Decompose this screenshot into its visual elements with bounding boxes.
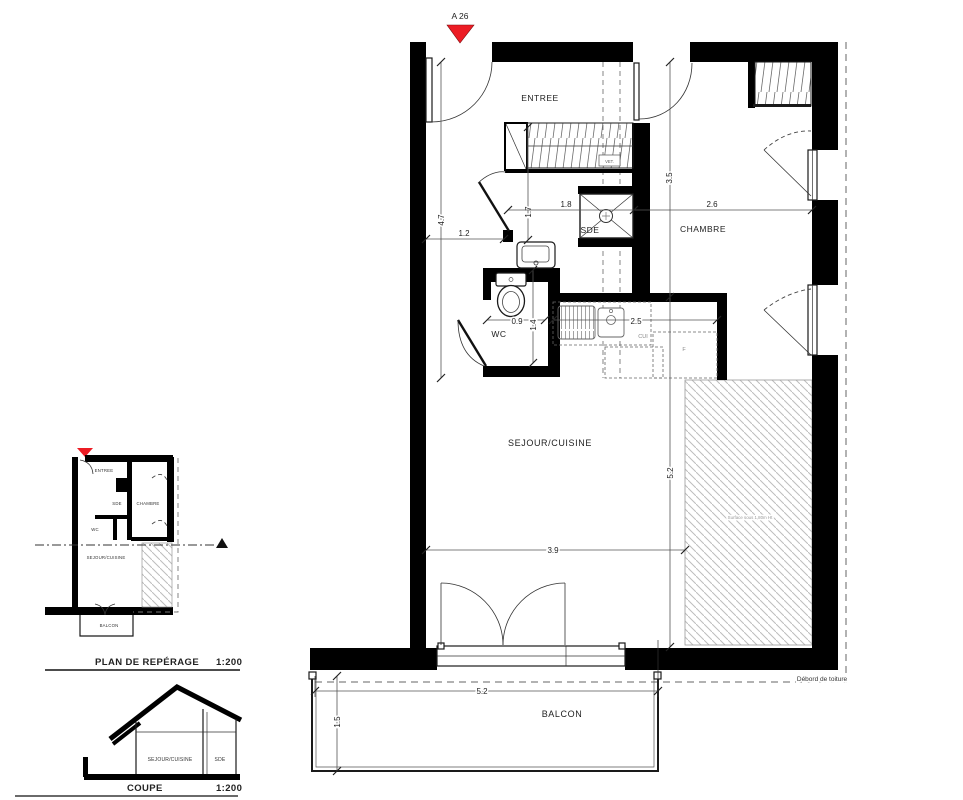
toilet (496, 273, 526, 317)
room-label-sde: SDE (581, 225, 600, 235)
entry-door-leaf (426, 58, 432, 122)
section-view: SEJOUR/CUISINE SDE COUPE 1:200 (15, 687, 242, 796)
sde-door-swing-arc (478, 172, 506, 183)
window-swing-arc (764, 289, 811, 310)
reference-plan: ENTREE SDE CHAMBRE WC SEJOUR/CUISINE BAL… (35, 448, 242, 670)
room-label-balcon: BALCON (542, 709, 583, 719)
apartment-marker: A 26 (447, 11, 474, 43)
apartment-id-label: A 26 (451, 11, 468, 21)
main-floor-plan: Surface sous 1,80m Ht (309, 42, 847, 775)
washbasin (517, 242, 555, 268)
mini-label-sde: SDE (112, 501, 121, 506)
low-ceiling-area: Surface sous 1,80m Ht (685, 380, 812, 645)
dim-chambre-depth: 3.5 (665, 172, 674, 184)
sde-door (478, 172, 509, 231)
wc-door (458, 320, 486, 366)
chambre-door (634, 63, 692, 120)
mini-low-ceiling-area (142, 543, 172, 607)
section-scale: 1:200 (216, 783, 242, 794)
mini-label-entree: ENTREE (95, 468, 114, 473)
entry-door (426, 58, 492, 122)
sde-door-leaf (479, 182, 509, 231)
chambre-door-leaf (634, 63, 639, 120)
french-door-swing-right (503, 583, 565, 645)
section-label-sejour: SEJOUR/CUISINE (148, 757, 193, 763)
dim-kitchen-length: 2.5 (630, 317, 642, 326)
dim-balcon-width: 5.2 (476, 687, 488, 696)
dim-entry-hall-length: 4.7 (437, 214, 446, 226)
window-leaf (764, 150, 811, 196)
room-label-sejour: SEJOUR/CUISINE (508, 438, 592, 448)
section-balcony-parapet (83, 757, 88, 777)
roof-overhang-label: Débord de toiture (797, 676, 848, 683)
chambre-door-swing-arc (639, 63, 692, 119)
french-door-swing-left (441, 583, 503, 645)
chambre-wardrobe (753, 62, 811, 107)
appliance-box (605, 347, 663, 378)
closet-label: VET. (605, 159, 614, 164)
window-leaf (764, 310, 811, 355)
mini-label-balcon: BALCON (100, 623, 119, 628)
room-label-chambre: CHAMBRE (680, 224, 726, 234)
dim-hall-width: 1.2 (458, 229, 470, 238)
stove-icon (558, 306, 595, 339)
wc-door-leaf (458, 320, 486, 366)
dim-sde-depth: 1.7 (524, 206, 533, 218)
kitchen-label: CUI (638, 334, 648, 340)
entry-door-swing-arc (431, 62, 492, 122)
mini-label-sejour: SEJOUR/CUISINE (87, 555, 126, 560)
section-floor-slab (84, 774, 240, 780)
fridge-label: F (682, 347, 686, 353)
mini-entry-door-arc (80, 460, 93, 474)
room-label-wc: WC (491, 329, 506, 339)
reference-plan-scale: 1:200 (216, 657, 242, 668)
dim-sde-width: 1.8 (560, 200, 572, 209)
mini-label-chambre: CHAMBRE (137, 501, 160, 506)
kitchen-unit: CUI F (553, 302, 717, 378)
reference-plan-title: PLAN DE REPÉRAGE (95, 657, 199, 668)
dim-sejour-width: 3.9 (547, 546, 559, 555)
architectural-drawing-sheet: A 26 Surface sous 1,80m Ht (0, 0, 963, 800)
window-swing-arc (764, 131, 811, 150)
mini-label-wc: WC (91, 527, 99, 532)
floor-plan-drawing: A 26 Surface sous 1,80m Ht (0, 0, 963, 800)
balcony-french-doors (437, 583, 625, 666)
dim-sejour-length: 5.2 (666, 467, 675, 479)
chambre-window-upper (764, 131, 817, 200)
section-arrow-icon (216, 538, 228, 548)
mini-window-arc (152, 520, 167, 526)
chambre-window-lower (764, 285, 817, 355)
section-title: COUPE (127, 783, 163, 794)
dim-balcon-depth: 1.5 (333, 716, 342, 728)
dim-wc-width: 0.9 (511, 317, 523, 326)
location-triangle-icon (447, 25, 474, 43)
dim-wc-depth: 1.4 (529, 319, 538, 331)
room-label-entree: ENTREE (521, 93, 558, 103)
dim-chambre-width: 2.6 (706, 200, 718, 209)
mini-window-arc (152, 474, 167, 480)
low-ceiling-label: Surface sous 1,80m Ht (728, 515, 773, 520)
section-label-sde: SDE (215, 757, 226, 763)
